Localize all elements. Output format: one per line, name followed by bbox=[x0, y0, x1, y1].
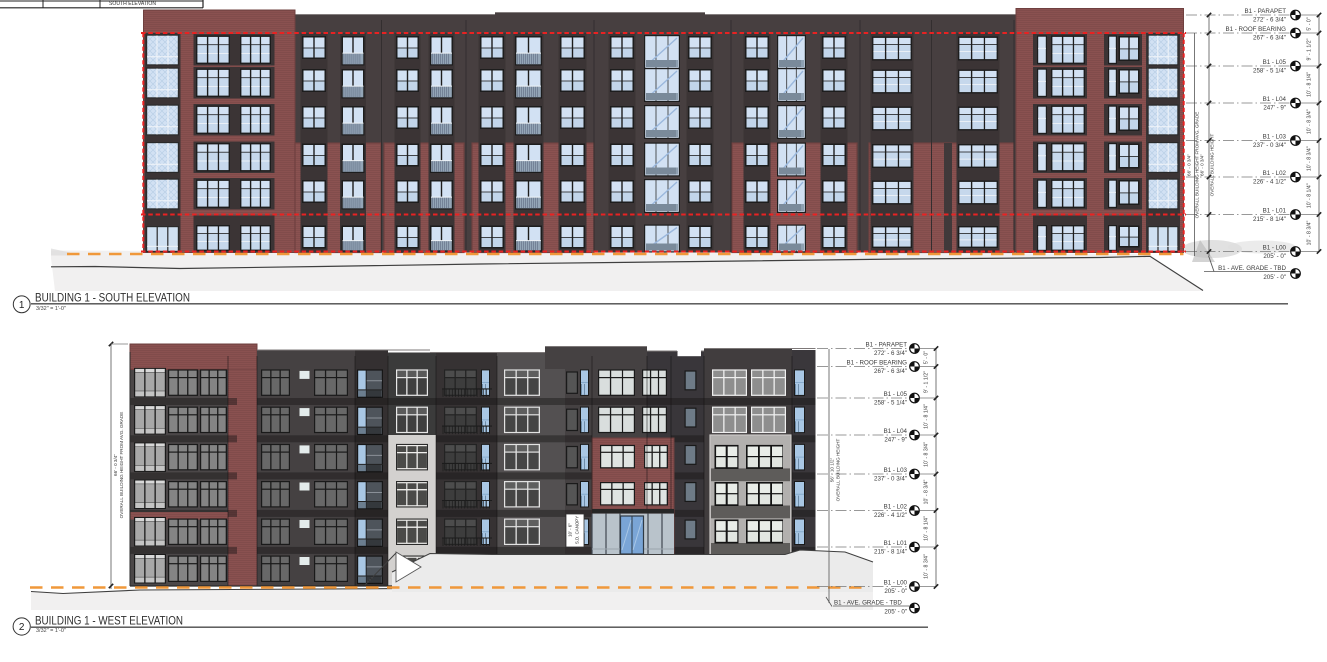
svg-text:258' - 5 1/4": 258' - 5 1/4" bbox=[1253, 67, 1286, 74]
svg-text:226' - 4 1/2": 226' - 4 1/2" bbox=[874, 512, 907, 519]
svg-text:B1 - AVE. GRADE - TBD: B1 - AVE. GRADE - TBD bbox=[1218, 265, 1286, 272]
svg-text:10' - 8 3/4": 10' - 8 3/4" bbox=[924, 554, 930, 579]
svg-text:OVERALL BUILDING HEIGHT: OVERALL BUILDING HEIGHT bbox=[836, 439, 841, 502]
svg-text:BUILDING 1 - WEST ELEVATION: BUILDING 1 - WEST ELEVATION bbox=[35, 616, 183, 628]
svg-text:SOUTH ELEVATION: SOUTH ELEVATION bbox=[109, 1, 156, 7]
svg-text:226' - 4 1/2": 226' - 4 1/2" bbox=[1253, 178, 1286, 185]
svg-text:10' - 6": 10' - 6" bbox=[568, 523, 573, 537]
svg-text:66' - 0 3/4": 66' - 0 3/4" bbox=[1187, 154, 1192, 176]
svg-text:2: 2 bbox=[19, 622, 25, 633]
svg-text:B1 - L00: B1 - L00 bbox=[1263, 245, 1287, 252]
svg-text:OVERALL BUILDING HEIGHT FROM A: OVERALL BUILDING HEIGHT FROM AVG. GRADE bbox=[119, 412, 124, 519]
svg-text:B1 - ROOF BEARING: B1 - ROOF BEARING bbox=[846, 360, 907, 367]
svg-text:B1 - L03: B1 - L03 bbox=[884, 467, 908, 474]
svg-text:56' - 10 1/2": 56' - 10 1/2" bbox=[830, 457, 835, 482]
svg-text:247' - 9": 247' - 9" bbox=[1263, 104, 1286, 111]
svg-text:B1 - PARAPET: B1 - PARAPET bbox=[1245, 8, 1287, 15]
svg-text:9' - 1 1/2": 9' - 1 1/2" bbox=[1307, 38, 1313, 60]
svg-text:1: 1 bbox=[19, 300, 25, 311]
svg-text:66' - 0 3/4": 66' - 0 3/4" bbox=[1200, 154, 1205, 176]
svg-text:205' - 0": 205' - 0" bbox=[884, 609, 907, 616]
svg-text:10' - 8 1/4": 10' - 8 1/4" bbox=[924, 404, 930, 429]
svg-text:66' - 0 3/4": 66' - 0 3/4" bbox=[113, 454, 118, 476]
svg-text:B1 - L02: B1 - L02 bbox=[1263, 170, 1287, 177]
svg-text:5' - 0": 5' - 0" bbox=[1307, 17, 1313, 30]
svg-text:B1 - L00: B1 - L00 bbox=[884, 580, 908, 587]
svg-text:10' - 8 3/4": 10' - 8 3/4" bbox=[924, 479, 930, 504]
svg-text:B1 - L01: B1 - L01 bbox=[1263, 208, 1287, 215]
svg-text:B1 - L01: B1 - L01 bbox=[884, 540, 908, 547]
svg-text:10' - 8 3/4": 10' - 8 3/4" bbox=[1307, 109, 1313, 134]
svg-text:B1 - L04: B1 - L04 bbox=[1263, 96, 1287, 103]
svg-text:215' - 8 1/4": 215' - 8 1/4" bbox=[874, 548, 907, 555]
svg-text:237' - 0 3/4": 237' - 0 3/4" bbox=[1253, 142, 1286, 149]
svg-text:B1 - L05: B1 - L05 bbox=[1263, 59, 1287, 66]
svg-text:3/32" = 1'-0": 3/32" = 1'-0" bbox=[36, 306, 66, 312]
svg-text:10' - 8 3/4": 10' - 8 3/4" bbox=[1307, 220, 1313, 245]
svg-text:B1 - L02: B1 - L02 bbox=[884, 504, 908, 511]
svg-text:205' - 0": 205' - 0" bbox=[1263, 253, 1286, 260]
svg-text:BUILDING 1 - SOUTH ELEVATION: BUILDING 1 - SOUTH ELEVATION bbox=[35, 293, 190, 305]
svg-text:267' - 6 3/4": 267' - 6 3/4" bbox=[874, 368, 907, 375]
svg-text:B1 - AVE. GRADE - TBD: B1 - AVE. GRADE - TBD bbox=[834, 600, 902, 607]
svg-text:258' - 5 1/4": 258' - 5 1/4" bbox=[874, 399, 907, 406]
svg-text:237' - 0 3/4": 237' - 0 3/4" bbox=[874, 475, 907, 482]
svg-text:B1 - L04: B1 - L04 bbox=[884, 428, 908, 435]
svg-text:S.D. CANOPY: S.D. CANOPY bbox=[575, 516, 580, 544]
svg-text:10' - 8 1/4": 10' - 8 1/4" bbox=[1307, 183, 1313, 208]
svg-text:215' - 8 1/4": 215' - 8 1/4" bbox=[1253, 216, 1286, 223]
svg-text:247' - 9": 247' - 9" bbox=[884, 436, 907, 443]
svg-text:10' - 8 3/4": 10' - 8 3/4" bbox=[924, 442, 930, 467]
svg-text:272' - 6 3/4": 272' - 6 3/4" bbox=[874, 350, 907, 357]
svg-text:B1 - L03: B1 - L03 bbox=[1263, 134, 1287, 141]
svg-text:205' - 0": 205' - 0" bbox=[1263, 274, 1286, 281]
svg-text:B1 - ROOF BEARING: B1 - ROOF BEARING bbox=[1225, 26, 1286, 33]
svg-text:B1 - PARAPET: B1 - PARAPET bbox=[866, 342, 908, 349]
svg-text:272' - 6 3/4": 272' - 6 3/4" bbox=[1253, 16, 1286, 23]
svg-text:5' - 0": 5' - 0" bbox=[924, 351, 930, 364]
svg-text:267' - 6 3/4": 267' - 6 3/4" bbox=[1253, 34, 1286, 41]
svg-text:10' - 8 3/4": 10' - 8 3/4" bbox=[1307, 146, 1313, 171]
svg-text:10' - 8 1/4": 10' - 8 1/4" bbox=[924, 516, 930, 541]
svg-text:10' - 8 1/4": 10' - 8 1/4" bbox=[1307, 72, 1313, 97]
svg-text:205' - 0": 205' - 0" bbox=[884, 588, 907, 595]
svg-text:OVERALL BUILDING HEIGHT: OVERALL BUILDING HEIGHT bbox=[1210, 134, 1215, 197]
svg-text:B1 - L05: B1 - L05 bbox=[884, 391, 908, 398]
svg-text:3/32" = 1'-0": 3/32" = 1'-0" bbox=[36, 628, 66, 634]
svg-text:9' - 1 1/2": 9' - 1 1/2" bbox=[924, 371, 930, 393]
